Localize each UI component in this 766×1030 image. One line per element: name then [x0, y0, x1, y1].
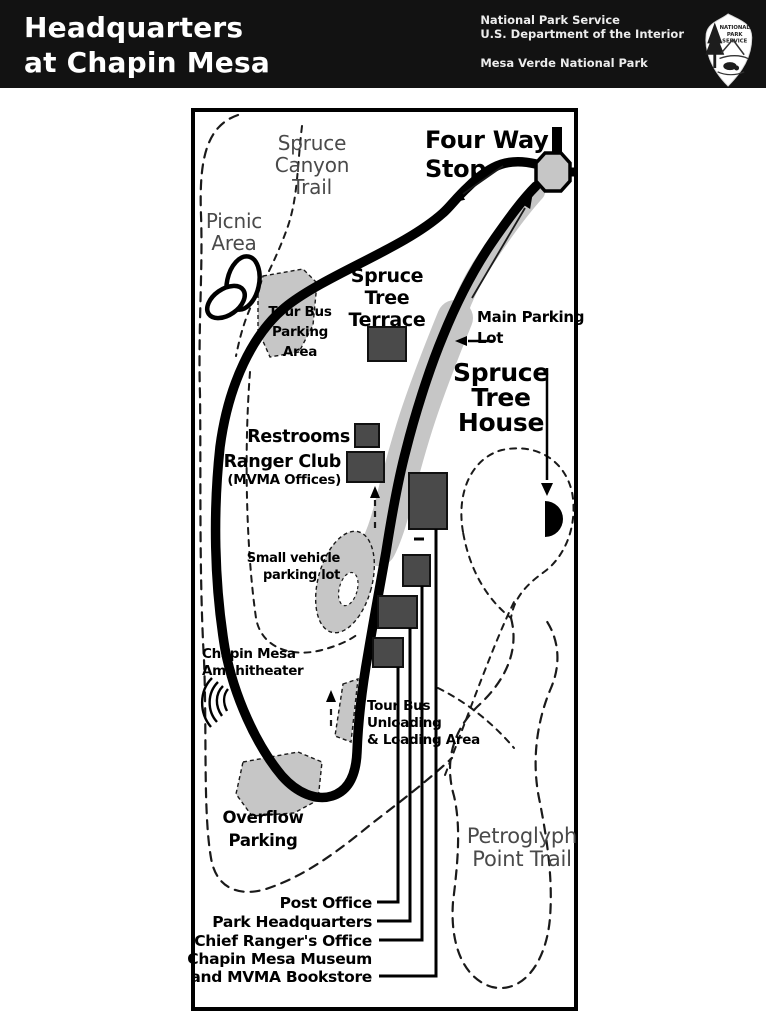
header-agency-block: National Park Service U.S. Department of…	[480, 0, 766, 88]
page-title-line1: Headquarters	[24, 10, 270, 45]
four-way-stop-label2: Stop	[425, 155, 486, 183]
overflow-parking-label: Overflow	[222, 808, 303, 827]
svg-text:& Loading Area: & Loading Area	[367, 732, 480, 748]
amphitheater-label: Chapin Mesa	[202, 646, 296, 662]
svg-text:Tree: Tree	[365, 287, 410, 309]
svg-text:parking lot: parking lot	[263, 568, 340, 583]
post-office-label: Post Office	[280, 894, 372, 912]
tour-bus-unloading-label: Tour Bus	[367, 698, 430, 714]
agency-line2: U.S. Department of the Interior	[480, 27, 684, 41]
svg-text:Parking: Parking	[228, 831, 297, 850]
page-title-line2: at Chapin Mesa	[24, 45, 270, 80]
logo-tree-trunk	[713, 53, 716, 68]
svg-text:House: House	[458, 408, 544, 437]
picnic-area-label: Picnic	[206, 209, 262, 233]
svg-text:Unloading: Unloading	[367, 715, 441, 731]
ranger-club-label: Ranger Club	[224, 452, 341, 472]
building-post-office	[373, 638, 403, 667]
four-way-stop-octagon	[536, 153, 570, 191]
petroglyph-point-trail-label: Petroglyph	[467, 824, 577, 848]
map-canvas: Four Way Stop Spruce Canyon Trail Picnic…	[0, 0, 766, 1030]
park-headquarters-label: Park Headquarters	[212, 913, 372, 931]
restrooms-label: Restrooms	[247, 427, 350, 447]
header-bar: Headquarters at Chapin Mesa National Par…	[0, 0, 766, 88]
ranger-club-sub-label: (MVMA Offices)	[227, 472, 341, 488]
svg-text:Lot: Lot	[477, 329, 503, 347]
svg-text:Area: Area	[283, 344, 317, 360]
museum-label-line2: and MVMA Bookstore	[190, 968, 372, 986]
svg-text:Terrace: Terrace	[349, 309, 426, 331]
svg-text:Trail: Trail	[291, 175, 332, 199]
svg-text:Area: Area	[211, 231, 256, 255]
svg-text:Amphitheater: Amphitheater	[202, 663, 304, 679]
building-restrooms	[355, 424, 379, 447]
svg-text:Point Trail: Point Trail	[472, 847, 572, 871]
spruce-canyon-trail-label: Spruce	[278, 131, 346, 155]
nps-arrowhead-logo-icon: NATIONAL PARK SERVICE	[700, 13, 758, 87]
tour-bus-parking-label: Tour Bus	[268, 304, 331, 320]
small-vehicle-lot-label: Small vehicle	[247, 551, 341, 566]
logo-text-line1: NATIONAL	[720, 25, 751, 31]
main-parking-lot-label: Main Parking	[477, 308, 584, 326]
agency-line1: National Park Service	[480, 13, 684, 27]
svg-text:Canyon: Canyon	[275, 153, 349, 177]
page-title: Headquarters at Chapin Mesa	[0, 0, 270, 88]
building-chapin-mesa-museum	[409, 473, 447, 529]
building-park-headquarters	[378, 596, 417, 628]
spruce-tree-terrace-label: Spruce	[351, 265, 424, 287]
park-name: Mesa Verde National Park	[480, 56, 684, 70]
four-way-stop-label: Four Way	[425, 126, 549, 154]
building-spruce-tree-terrace	[368, 327, 406, 361]
building-chief-rangers-office	[403, 555, 430, 586]
building-ranger-club	[347, 452, 384, 482]
svg-text:Parking: Parking	[272, 324, 328, 340]
chief-rangers-office-label: Chief Ranger's Office	[194, 932, 372, 950]
museum-label-line1: Chapin Mesa Museum	[187, 950, 372, 968]
logo-text-line2: PARK	[727, 32, 744, 38]
